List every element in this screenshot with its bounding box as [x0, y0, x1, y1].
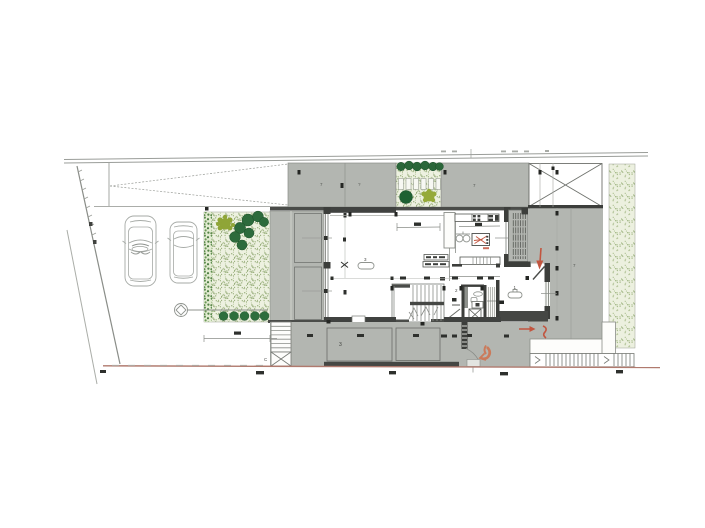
- svg-text:3: 3: [339, 342, 342, 348]
